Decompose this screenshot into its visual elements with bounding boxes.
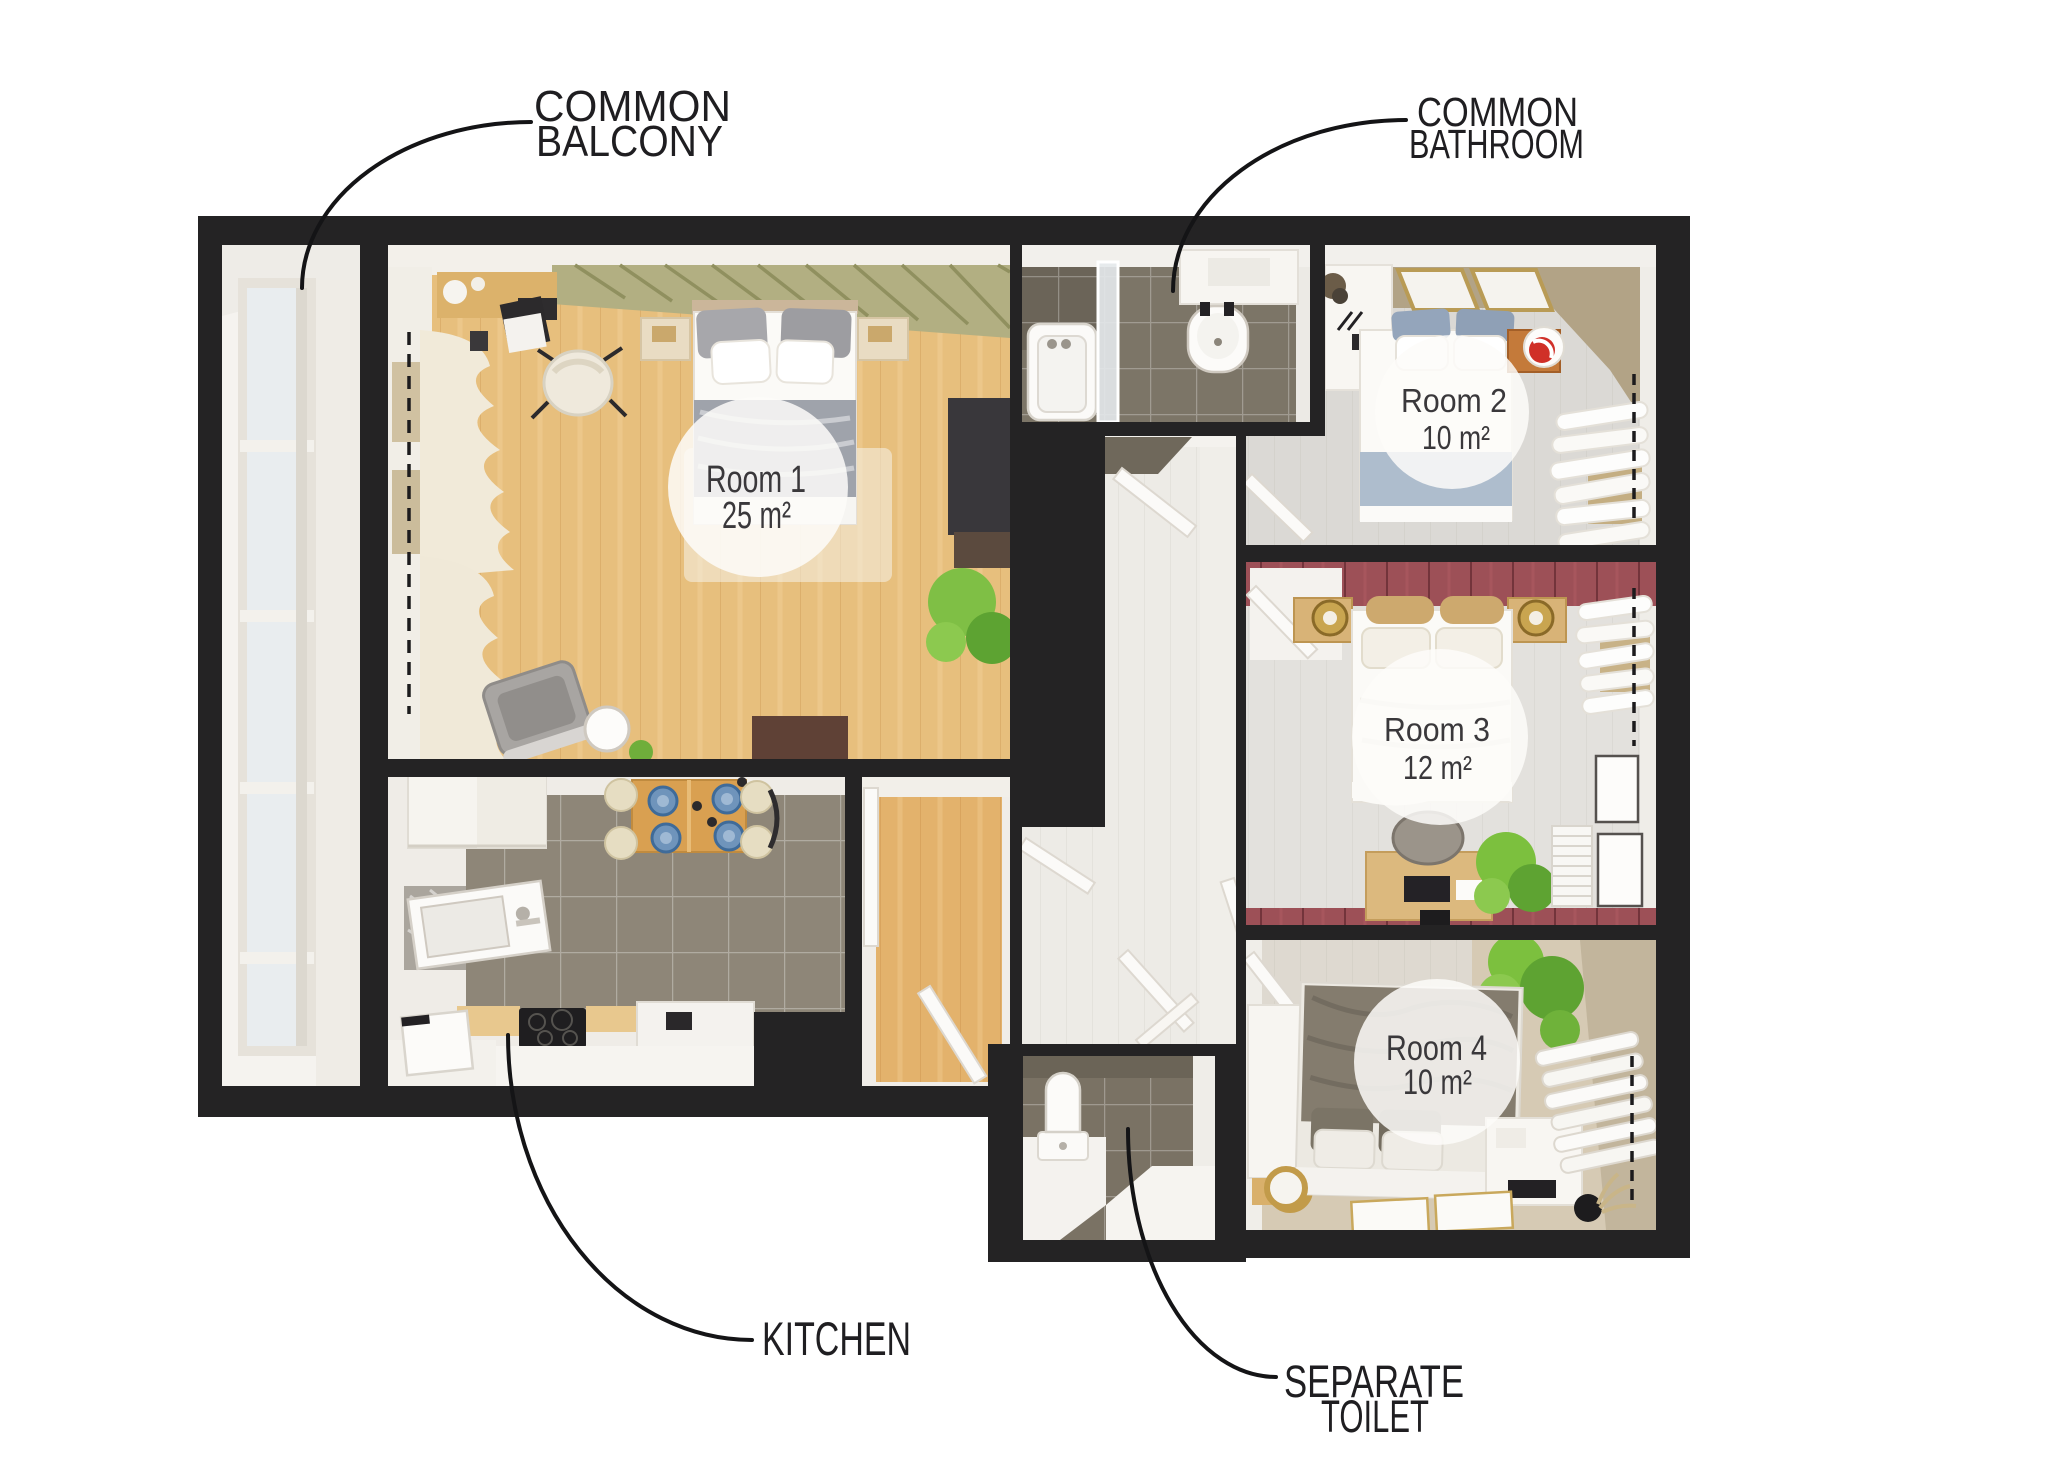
svg-text:TOILET: TOILET xyxy=(1321,1391,1429,1442)
svg-text:25 m²: 25 m² xyxy=(722,495,791,537)
svg-text:BATHROOM: BATHROOM xyxy=(1409,121,1584,167)
svg-text:Room 2: Room 2 xyxy=(1401,382,1507,419)
svg-text:BALCONY: BALCONY xyxy=(536,117,723,166)
svg-text:10 m²: 10 m² xyxy=(1403,1063,1472,1102)
svg-text:Room 3: Room 3 xyxy=(1384,711,1490,748)
svg-text:KITCHEN: KITCHEN xyxy=(762,1312,911,1365)
svg-text:10 m²: 10 m² xyxy=(1422,419,1490,456)
svg-text:12 m²: 12 m² xyxy=(1403,749,1472,786)
